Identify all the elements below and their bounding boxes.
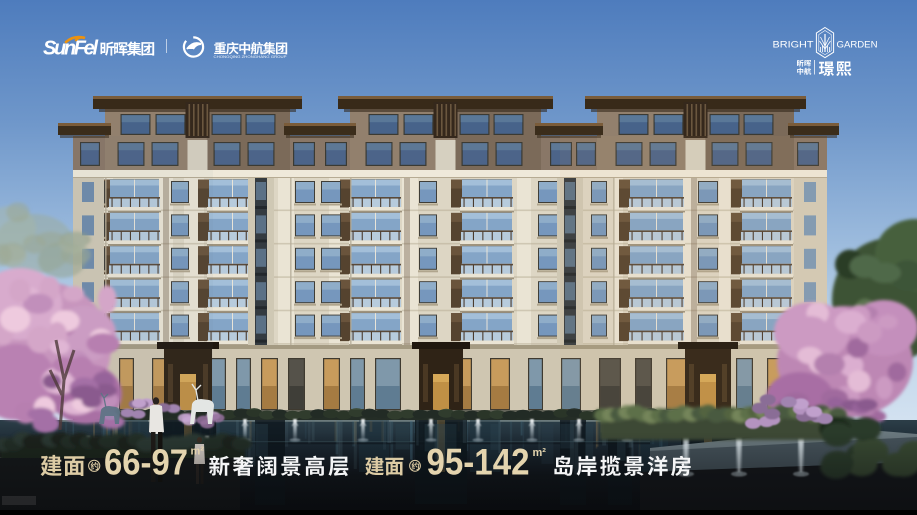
svg-text:66-97: 66-97 (104, 441, 188, 482)
svg-text:GARDEN: GARDEN (837, 39, 878, 49)
svg-text:95-142: 95-142 (427, 441, 530, 482)
svg-text:SunFel: SunFel (43, 38, 98, 60)
svg-text:CHONGQING ZHONGHANG GROUP: CHONGQING ZHONGHANG GROUP (214, 55, 288, 59)
svg-text:m²: m² (191, 446, 205, 458)
svg-text:BRIGHT: BRIGHT (773, 39, 815, 49)
svg-text:m²: m² (533, 447, 547, 459)
